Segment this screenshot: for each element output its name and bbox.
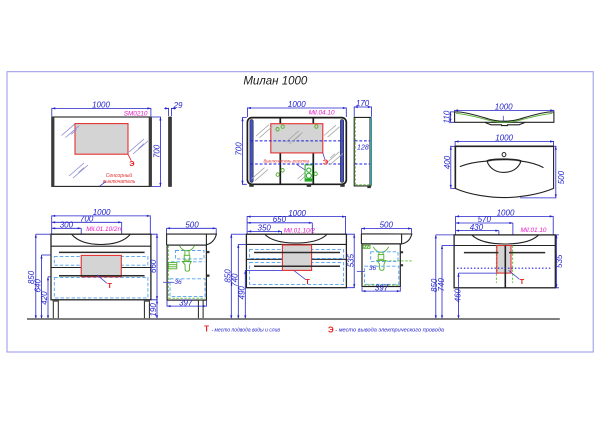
svg-text:1000: 1000 <box>288 100 306 109</box>
svg-text:535: 535 <box>555 254 564 268</box>
svg-text:500: 500 <box>185 221 199 230</box>
svg-text:400: 400 <box>443 155 452 169</box>
svg-text:397: 397 <box>179 298 193 307</box>
svg-text:740: 740 <box>437 278 446 292</box>
svg-text:490: 490 <box>237 286 246 300</box>
svg-text:Выключатель-розетка: Выключатель-розетка <box>263 159 310 164</box>
svg-text:1000: 1000 <box>497 209 515 218</box>
svg-text:T: T <box>520 277 525 286</box>
svg-text:выключатель: выключатель <box>103 179 136 185</box>
svg-text:640: 640 <box>34 278 43 292</box>
svg-text:36: 36 <box>174 279 182 286</box>
svg-text:Э: Э <box>129 159 135 168</box>
svg-text:128: 128 <box>357 144 369 151</box>
svg-text:36: 36 <box>369 265 377 272</box>
svg-text:700: 700 <box>153 144 162 158</box>
svg-text:Э: Э <box>328 325 334 334</box>
svg-text:740: 740 <box>231 273 240 287</box>
svg-text:397: 397 <box>375 283 389 292</box>
svg-text:Э: Э <box>323 157 329 166</box>
svg-text:Mil.01.10: Mil.01.10 <box>521 227 547 234</box>
svg-text:1000: 1000 <box>93 208 111 217</box>
svg-text:- место вывода электрического: - место вывода электрического провода <box>335 328 444 334</box>
svg-text:300: 300 <box>60 221 74 230</box>
svg-text:Сенсорный: Сенсорный <box>106 172 133 179</box>
svg-text:Милан 1000: Милан 1000 <box>243 75 308 87</box>
svg-text:1000: 1000 <box>92 101 110 110</box>
svg-text:Т: Т <box>204 325 209 334</box>
svg-text:Mil.01.10/2n: Mil.01.10/2n <box>86 226 121 233</box>
svg-text:650: 650 <box>273 215 287 224</box>
svg-text:29: 29 <box>173 101 183 110</box>
svg-text:110: 110 <box>443 110 452 123</box>
svg-text:1000: 1000 <box>495 134 513 143</box>
svg-text:1000: 1000 <box>495 103 513 112</box>
svg-text:700: 700 <box>80 215 94 224</box>
svg-text:535: 535 <box>346 253 355 267</box>
svg-text:420: 420 <box>40 291 49 305</box>
svg-text:190: 190 <box>149 303 158 317</box>
svg-text:500: 500 <box>380 221 394 230</box>
svg-text:1000: 1000 <box>288 209 306 218</box>
svg-text:700: 700 <box>235 142 244 156</box>
svg-text:Mil.01.10/2: Mil.01.10/2 <box>284 227 316 234</box>
svg-text:T: T <box>107 281 112 290</box>
svg-text:350: 350 <box>258 224 272 233</box>
svg-text:430: 430 <box>470 223 484 232</box>
svg-text:460: 460 <box>453 288 462 302</box>
svg-text:170: 170 <box>356 99 370 108</box>
svg-text:- место подвода воды и слив: - место подвода воды и слив <box>212 327 281 333</box>
svg-text:Mil.04.10: Mil.04.10 <box>309 110 335 117</box>
svg-text:T: T <box>305 277 310 286</box>
svg-text:500: 500 <box>557 170 566 184</box>
svg-text:660: 660 <box>149 259 158 273</box>
